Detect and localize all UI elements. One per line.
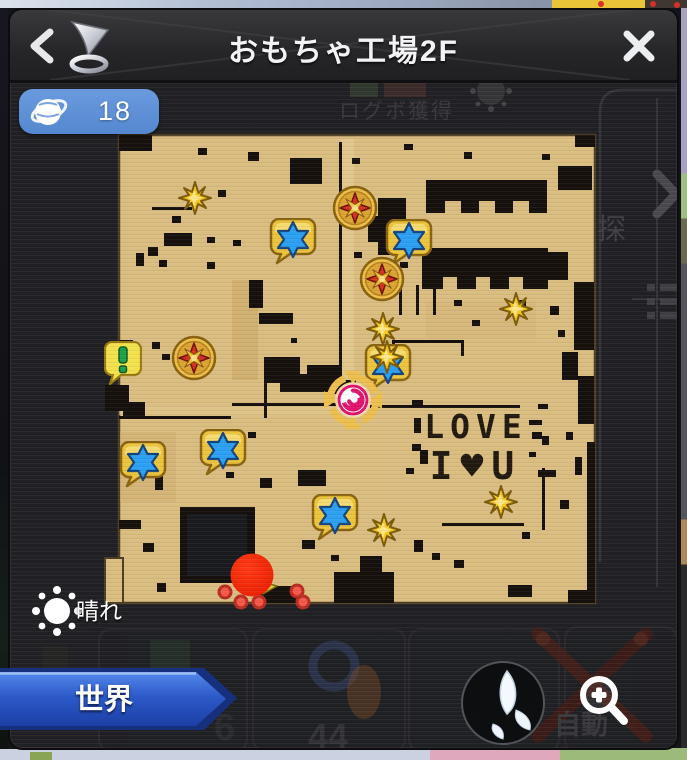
- feather-button[interactable]: [459, 659, 547, 747]
- marker-small-player-dots: [234, 595, 249, 610]
- world-button-label: 世界: [75, 683, 133, 716]
- magnifier-plus-icon: [583, 679, 624, 721]
- marker-quest-star-blue[interactable]: [199, 429, 247, 477]
- marker-sparkle-gold[interactable]: [177, 180, 213, 216]
- world-count-badge[interactable]: 18: [19, 89, 159, 134]
- marker-portal-spiral[interactable]: [323, 370, 383, 430]
- world-button[interactable]: 世界: [0, 660, 245, 740]
- marker-quest-star-blue[interactable]: [269, 218, 317, 266]
- marker-quest-star-blue[interactable]: [119, 441, 167, 489]
- bg-red-dot-1: [598, 1, 604, 7]
- globe-icon: [27, 92, 71, 132]
- close-x-icon: [627, 34, 651, 58]
- bg-left-edge: [0, 8, 8, 760]
- marker-small-player-dots: [296, 595, 311, 610]
- marker-compass-star-red[interactable]: [332, 185, 378, 231]
- bg-bottom-left: [0, 749, 430, 760]
- bg-red-dot-2: [650, 1, 656, 7]
- bg-right-edge: [681, 8, 687, 760]
- page-title: おもちゃ工場2F: [10, 26, 677, 70]
- marker-compass-star-red[interactable]: [171, 335, 217, 381]
- zoom-in-button[interactable]: [567, 664, 637, 736]
- bg-bottom-green-chip: [30, 752, 52, 760]
- marker-quest-star-blue[interactable]: [311, 494, 359, 542]
- bg-red-dot-3: [674, 2, 680, 8]
- header-bar: おもちゃ工場2F: [10, 10, 677, 83]
- marker-sparkle-gold[interactable]: [366, 512, 402, 548]
- world-count-value: 18: [71, 96, 159, 127]
- marker-small-player-dots: [218, 585, 233, 600]
- marker-sparkle-gold[interactable]: [498, 291, 534, 327]
- marker-exclamation[interactable]: [104, 341, 142, 385]
- weather-label: 晴れ: [76, 592, 122, 626]
- close-button[interactable]: [619, 24, 659, 68]
- marker-sparkle-gold[interactable]: [483, 484, 519, 520]
- marker-player: [231, 554, 274, 597]
- game-screen: { "header": { "title": "おもちゃ工場2F", "back…: [0, 0, 687, 760]
- marker-compass-star-red[interactable]: [359, 256, 405, 302]
- marker-small-player-dots: [252, 595, 267, 610]
